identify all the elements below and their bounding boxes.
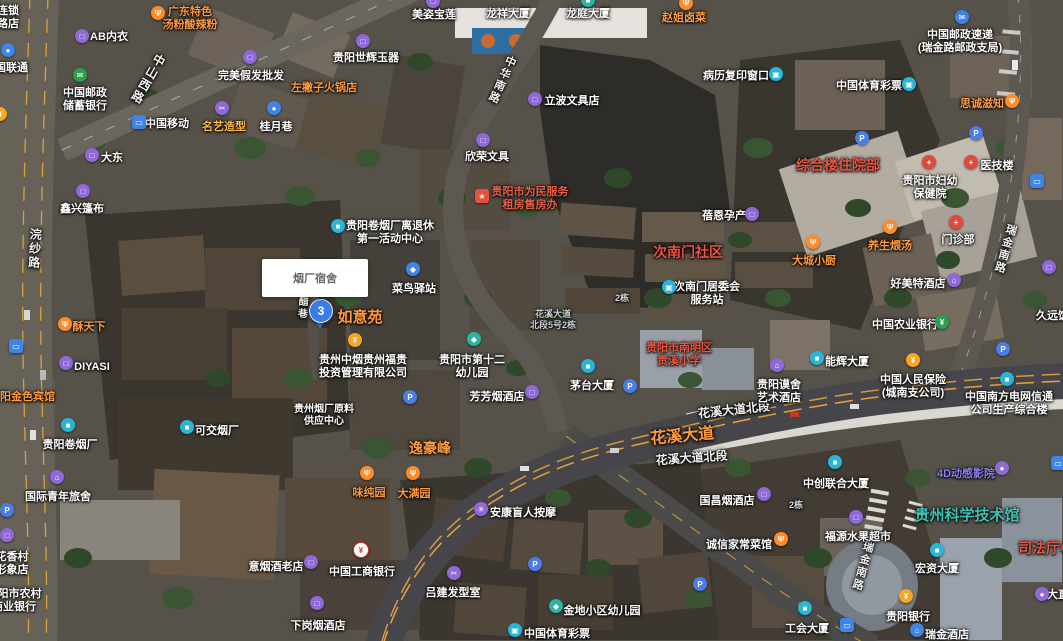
poi-label[interactable]: 次南门社区	[653, 244, 723, 261]
poi-icon[interactable]: ▭	[132, 115, 146, 129]
poi-label[interactable]: 安康盲人按摩	[490, 507, 556, 520]
poi-icon[interactable]: ■	[331, 219, 345, 233]
poi-label[interactable]: 贵阳金色宾馆	[0, 391, 55, 404]
poi-icon[interactable]: ¥	[353, 542, 369, 558]
poi-icon[interactable]: ●	[1, 43, 15, 57]
poi-icon[interactable]: +	[922, 155, 936, 169]
poi-icon[interactable]: □	[310, 596, 324, 610]
poi-label[interactable]: 中国移动	[145, 118, 189, 131]
poi-icon[interactable]: ✉	[73, 68, 87, 82]
poi-label[interactable]: 贵阳卷烟厂离退休第一活动中心	[346, 220, 434, 246]
poi-label[interactable]: 养生煨汤	[868, 240, 912, 253]
poi-label[interactable]: 贵州烟厂原料供应中心	[294, 404, 354, 428]
poi-icon[interactable]: ✳	[474, 502, 488, 516]
poi-label[interactable]: 龙庭大厦	[566, 8, 610, 21]
poi-icon[interactable]: +	[949, 215, 963, 229]
poi-icon[interactable]: ✂	[215, 101, 229, 115]
poi-icon[interactable]: P	[693, 577, 707, 591]
poi-label[interactable]: 司法厅小区	[1018, 540, 1063, 557]
poi-label[interactable]: 鑫兴篷布	[60, 203, 104, 216]
poi-icon[interactable]: ●	[995, 461, 1009, 475]
poi-label[interactable]: 菜鸟驿站	[392, 283, 436, 296]
poi-label[interactable]: DIYASI	[74, 361, 110, 374]
poi-label[interactable]: 2栋	[615, 293, 629, 304]
poi-icon[interactable]: ●	[1035, 587, 1049, 601]
poi-label[interactable]: 花香村形象店	[0, 551, 29, 577]
poi-icon[interactable]: ▣	[902, 77, 916, 91]
poi-label[interactable]: 欣荣文具	[465, 151, 509, 164]
poi-icon[interactable]: ●	[267, 101, 281, 115]
poi-label[interactable]: 2栋	[789, 500, 803, 511]
poi-icon[interactable]: Ψ	[883, 220, 897, 234]
poi-icon[interactable]: □	[76, 184, 90, 198]
poi-label[interactable]: 中国工商银行	[329, 566, 395, 579]
poi-icon[interactable]: □	[75, 29, 89, 43]
poi-label[interactable]: 茅台大厦	[570, 380, 614, 393]
poi-icon[interactable]: ⌂	[947, 273, 961, 287]
poi-label[interactable]: 赵姐卤菜	[662, 12, 706, 25]
poi-icon[interactable]: □	[757, 487, 771, 501]
poi-icon[interactable]: ■	[930, 543, 944, 557]
poi-label[interactable]: 贵阳市南明区贵溪小学	[646, 342, 712, 368]
poi-icon[interactable]: Ψ	[406, 466, 420, 480]
poi-label[interactable]: 综合楼住院部	[796, 157, 880, 174]
poi-label[interactable]: 左撇子火锅店	[291, 82, 357, 95]
poi-icon[interactable]: □	[304, 555, 318, 569]
poi-label[interactable]: 金地小区幼儿园	[564, 605, 641, 618]
poi-icon[interactable]: □	[1042, 260, 1056, 274]
poi-icon[interactable]: ★	[475, 189, 489, 203]
poi-icon[interactable]: □	[85, 148, 99, 162]
poi-label[interactable]: 门诊部	[942, 234, 975, 247]
poi-label[interactable]: 中国邮政速递(瑞金路邮政支局)	[918, 29, 1002, 55]
poi-icon[interactable]: □	[525, 385, 539, 399]
poi-label[interactable]: AB内衣	[90, 31, 128, 44]
poi-icon[interactable]: ▣	[662, 280, 676, 294]
poi-icon[interactable]: ■	[810, 351, 824, 365]
poi-icon[interactable]: ◆	[549, 599, 563, 613]
poi-icon[interactable]: P	[969, 126, 983, 140]
poi-label[interactable]: 可交烟厂	[195, 425, 239, 438]
poi-icon[interactable]: ¥	[906, 353, 920, 367]
poi-label[interactable]: 思诚滋知	[960, 98, 1004, 111]
poi-icon[interactable]: Ψ	[774, 532, 788, 546]
poi-icon[interactable]: □	[528, 92, 542, 106]
poi-label[interactable]: 贵州中烟贵州福贵投资管理有限公司	[319, 354, 407, 380]
poi-label[interactable]: 工会大厦	[785, 623, 829, 636]
poi-label[interactable]: 名艺造型	[202, 121, 246, 134]
poi-label[interactable]: 中国体育彩票	[524, 628, 590, 641]
poi-icon[interactable]: ■	[1000, 372, 1014, 386]
poi-label[interactable]: 能辉大厦	[825, 356, 869, 369]
poi-label[interactable]: 中创联合大厦	[803, 478, 869, 491]
road-label: 浣纱路	[25, 228, 44, 271]
poi-icon[interactable]: P	[403, 390, 417, 404]
poi-label[interactable]: 味纯园	[353, 487, 386, 500]
poi-label[interactable]: 大东	[101, 152, 123, 165]
poi-label[interactable]: 芳芳烟酒店	[470, 391, 525, 404]
poi-label[interactable]: 瑞金酒店	[925, 629, 969, 641]
poi-icon[interactable]: ■	[828, 455, 842, 469]
poi-label[interactable]: 美姿宝莲	[412, 9, 456, 22]
poi-label[interactable]: 贵州科学技术馆	[914, 507, 1019, 525]
poi-icon[interactable]: P	[855, 131, 869, 145]
poi-icon[interactable]: ▭	[1051, 456, 1063, 470]
selected-place-name: 烟厂宿舍	[293, 270, 337, 286]
poi-icon[interactable]: □	[59, 356, 73, 370]
poi-icon[interactable]: ▭	[1030, 174, 1044, 188]
poi-label[interactable]: 贵阳市第十二幼儿园	[439, 354, 505, 380]
poi-label[interactable]: 中国邮政储蓄银行	[63, 87, 107, 113]
poi-label[interactable]: 医技楼	[981, 160, 1014, 173]
poi-icon[interactable]: ◆	[406, 262, 420, 276]
poi-icon[interactable]: ▭	[9, 339, 23, 353]
poi-label[interactable]: 酥天下	[73, 321, 106, 334]
poi-label[interactable]: 贵阳谟舍艺术酒店	[757, 379, 801, 405]
poi-icon[interactable]: P	[996, 342, 1010, 356]
poi-icon[interactable]: Ψ	[1005, 94, 1019, 108]
poi-icon[interactable]: ◆	[467, 332, 481, 346]
poi-icon[interactable]: ⌂	[770, 358, 784, 372]
poi-label[interactable]: 贵阳卷烟厂	[43, 439, 98, 452]
poi-label[interactable]: 贵阳世辉玉器	[333, 52, 399, 65]
poi-label[interactable]: 大满园	[398, 488, 431, 501]
poi-icon[interactable]: ■	[180, 420, 194, 434]
poi-label[interactable]: 完美假发批发	[218, 70, 284, 83]
poi-label[interactable]: 蓓恩孕产	[702, 210, 746, 223]
poi-icon[interactable]: +	[964, 155, 978, 169]
poi-label[interactable]: 连锁路店	[0, 5, 19, 31]
poi-icon[interactable]: ¥	[899, 589, 913, 603]
poi-label[interactable]: 贵阳市为民服务租房售房办	[492, 186, 569, 212]
poi-icon[interactable]: ⌂	[910, 623, 924, 637]
poi-icon[interactable]: ▭	[840, 618, 854, 632]
poi-icon[interactable]: P	[0, 503, 14, 517]
poi-icon[interactable]: □	[243, 50, 257, 64]
poi-icon[interactable]: ✂	[447, 566, 461, 580]
poi-label[interactable]: 次南门居委会服务站	[674, 281, 740, 307]
map-pin-3[interactable]: 3	[308, 299, 332, 333]
poi-icon[interactable]: □	[476, 133, 490, 147]
poi-label[interactable]: 中国体育彩票	[836, 80, 902, 93]
poi-icon[interactable]: Ψ	[151, 6, 165, 20]
poi-icon[interactable]: □	[356, 34, 370, 48]
poi-label[interactable]: 龙祥大厦	[486, 8, 530, 21]
poi-label[interactable]: 国际青年旅舍	[25, 491, 91, 504]
poi-label[interactable]: 意烟酒老店	[249, 561, 304, 574]
poi-label[interactable]: 好美特酒店	[891, 278, 946, 291]
poi-icon[interactable]: ■	[581, 359, 595, 373]
poi-label[interactable]: 广东特色汤粉酸辣粉	[163, 6, 218, 32]
poi-icon[interactable]: ✉	[955, 10, 969, 24]
poi-label[interactable]: 中国农业银行	[872, 319, 938, 332]
poi-icon[interactable]: Ψ	[360, 466, 374, 480]
poi-icon[interactable]: □	[849, 510, 863, 524]
poi-label[interactable]: 宏资大厦	[915, 563, 959, 576]
poi-label[interactable]: 逸豪峰	[409, 440, 451, 457]
poi-icon[interactable]: ⌂	[50, 470, 64, 484]
poi-label[interactable]: 国昌烟酒店	[700, 495, 755, 508]
poi-icon[interactable]: P	[623, 379, 637, 393]
poi-icon[interactable]: ▣	[508, 623, 522, 637]
poi-icon[interactable]: □	[0, 528, 14, 542]
poi-label[interactable]: 久远饭店	[1036, 310, 1063, 323]
poi-icon[interactable]: Ψ	[58, 317, 72, 331]
poi-icon[interactable]: P	[528, 557, 542, 571]
poi-label[interactable]: 花溪大道北段5号2栋	[530, 309, 576, 330]
poi-label[interactable]: 福源水果超市	[825, 531, 891, 544]
poi-icon[interactable]: ▣	[769, 67, 783, 81]
map-pin-number: 3	[309, 299, 333, 323]
poi-icon[interactable]: ¥	[935, 315, 949, 329]
poi-label[interactable]: 诚信家常菜馆	[706, 539, 772, 552]
poi-label[interactable]: 4D动感影院	[937, 468, 995, 481]
poi-label[interactable]: 贵阳市农村商业银行	[0, 588, 42, 614]
poi-label[interactable]: 下岗烟酒店	[291, 620, 346, 633]
poi-label[interactable]: 贵阳银行	[886, 611, 930, 624]
poi-label[interactable]: 中国南方电网信通公司生产综合楼	[965, 391, 1053, 417]
satellite-map-canvas[interactable]: 连锁路店□AB内衣Ψ广东特色汤粉酸辣粉●中国联通✉中国邮政储蓄银行□大东□鑫兴篷…	[0, 0, 1063, 641]
poi-label[interactable]: 大直	[1047, 589, 1063, 602]
poi-icon[interactable]: ■	[798, 601, 812, 615]
selected-place-info-box[interactable]: 烟厂宿舍	[262, 259, 368, 297]
poi-label[interactable]: 中国人民保险(城南支公司)	[880, 374, 946, 400]
poi-label[interactable]: 中国联通	[0, 62, 28, 75]
poi-label[interactable]: 吕建发型室	[426, 587, 481, 600]
poi-label[interactable]: 桂月巷	[260, 121, 293, 134]
poi-label[interactable]: 如意苑	[337, 309, 382, 327]
poi-icon[interactable]: Ψ	[806, 235, 820, 249]
poi-label[interactable]: 大城小厨	[792, 255, 836, 268]
poi-icon[interactable]: ¥	[348, 333, 362, 347]
poi-label[interactable]: 病历复印窗口	[703, 70, 769, 83]
poi-icon[interactable]: ■	[61, 418, 75, 432]
poi-icon[interactable]: □	[745, 207, 759, 221]
poi-label[interactable]: 贵阳市妇幼保健院	[903, 175, 958, 201]
poi-label[interactable]: 立波文具店	[545, 95, 600, 108]
